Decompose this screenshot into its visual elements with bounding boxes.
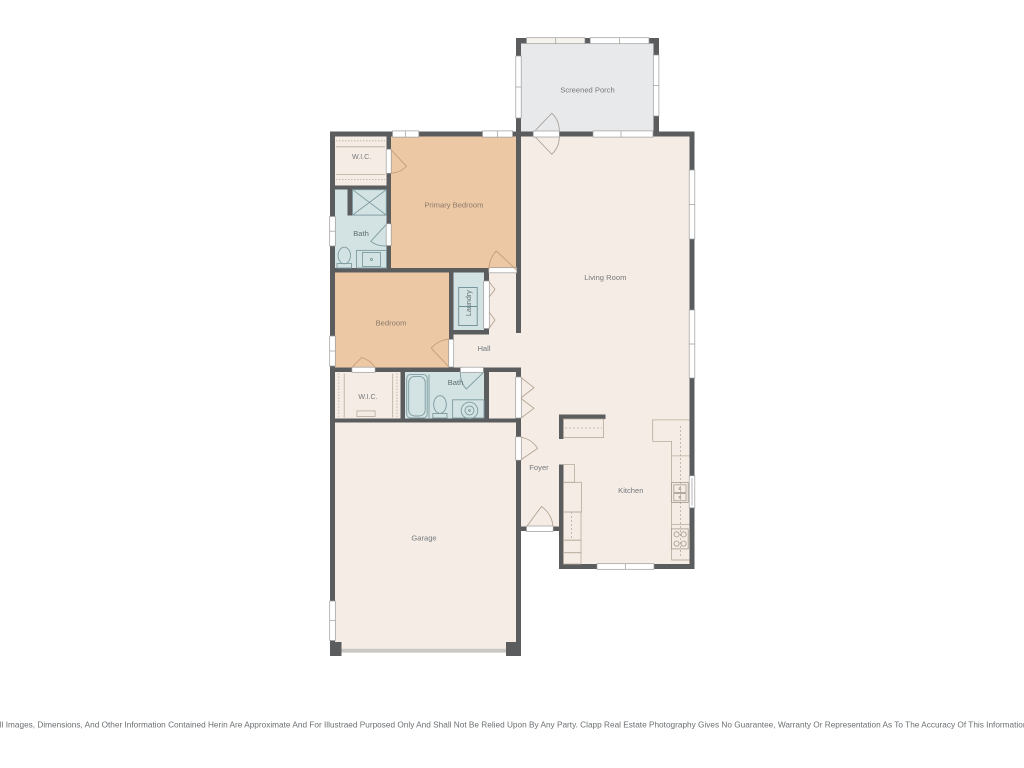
svg-text:Laundry: Laundry	[464, 290, 473, 316]
svg-text:W.I.C.: W.I.C.	[358, 393, 377, 401]
svg-text:Bedroom: Bedroom	[376, 319, 407, 328]
svg-text:Foyer: Foyer	[529, 463, 549, 472]
svg-text:Garage: Garage	[411, 534, 436, 543]
svg-text:Kitchen: Kitchen	[618, 486, 643, 495]
svg-text:All Images, Dimensions, And Ot: All Images, Dimensions, And Other Inform…	[0, 721, 1024, 730]
svg-text:Bath: Bath	[448, 378, 464, 387]
svg-text:Primary Bedroom: Primary Bedroom	[424, 201, 483, 210]
svg-text:W.I.C.: W.I.C.	[352, 153, 371, 161]
svg-text:Screened Porch: Screened Porch	[560, 85, 614, 94]
svg-text:Living Room: Living Room	[584, 273, 626, 282]
svg-text:Hall: Hall	[477, 344, 490, 353]
svg-text:Bath: Bath	[353, 229, 369, 238]
